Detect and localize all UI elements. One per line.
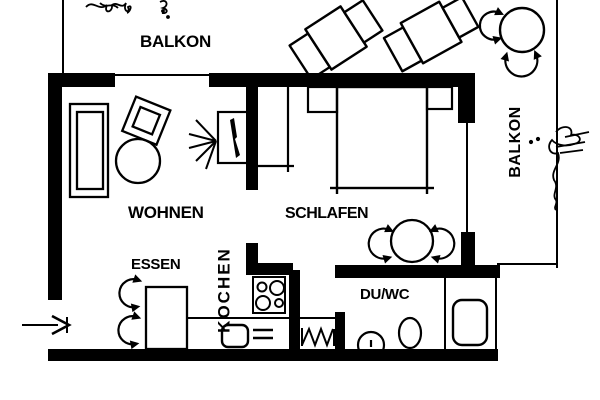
- tv-rays: [189, 120, 216, 169]
- radiator-zigzag: [302, 328, 334, 346]
- floor-plan: BALKON WOHNEN SCHLAFEN ESSEN DU/WC KOCHE…: [0, 0, 600, 400]
- stove: [253, 277, 285, 313]
- deck-chair-2: [381, 0, 480, 74]
- plant-sketch-top: [86, 1, 169, 18]
- label-bath: DU/WC: [360, 287, 409, 302]
- coffee-table: [116, 139, 160, 183]
- closet-partition: [258, 87, 294, 172]
- label-living-room: WOHNEN: [128, 204, 204, 221]
- dining-chair-arcs: [118, 279, 138, 344]
- tv: [189, 112, 248, 169]
- label-bedroom: SCHLAFEN: [285, 206, 368, 222]
- plant-sketch-right: [530, 127, 589, 210]
- dining-table: [146, 287, 187, 349]
- drainer-lines: [253, 330, 273, 338]
- label-balcony-right: BALKON: [508, 106, 524, 177]
- balcony-table: [500, 8, 544, 52]
- bed: [330, 87, 434, 194]
- shower-tray: [453, 300, 487, 345]
- bedroom-table: [391, 220, 433, 262]
- plan-linework: [0, 0, 600, 400]
- label-balcony-top: BALKON: [140, 33, 211, 50]
- armchair: [122, 97, 170, 145]
- entrance-arrow: [22, 316, 69, 334]
- bedroom-chair-arcs: [369, 229, 455, 259]
- label-kitchen: KOCHEN: [216, 247, 233, 333]
- sofa: [70, 104, 108, 197]
- deck-chair-1: [287, 0, 385, 82]
- balcony-chair-arcs: [480, 12, 537, 77]
- nightstand-right: [427, 87, 452, 109]
- label-dining: ESSEN: [131, 257, 180, 272]
- nightstand-left: [308, 87, 337, 112]
- toilet: [399, 318, 421, 348]
